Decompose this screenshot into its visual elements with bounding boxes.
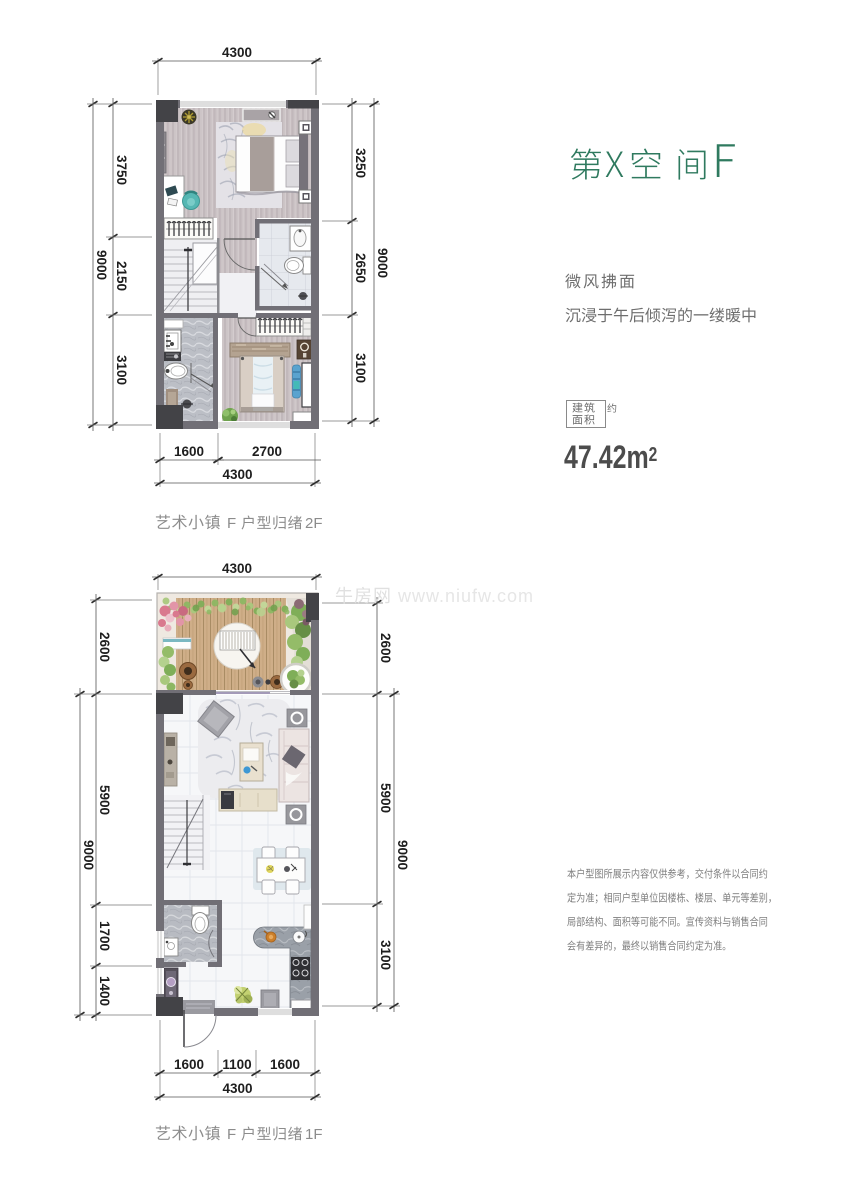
svg-text:2650: 2650 (353, 253, 368, 283)
svg-text:4300: 4300 (222, 467, 252, 482)
svg-text:2600: 2600 (378, 633, 393, 663)
svg-text:1600: 1600 (270, 1057, 300, 1072)
svg-text:1700: 1700 (97, 921, 112, 951)
svg-text:4300: 4300 (222, 561, 252, 576)
svg-text:9000: 9000 (81, 840, 96, 870)
svg-text:9000: 9000 (395, 840, 410, 870)
svg-text:1600: 1600 (174, 1057, 204, 1072)
svg-text:9000: 9000 (94, 250, 109, 280)
svg-text:1600: 1600 (174, 444, 204, 459)
svg-text:3250: 3250 (353, 148, 368, 178)
svg-text:3100: 3100 (353, 353, 368, 383)
svg-text:4300: 4300 (222, 45, 252, 60)
svg-text:1400: 1400 (97, 976, 112, 1006)
svg-text:3100: 3100 (378, 940, 393, 970)
svg-text:5900: 5900 (378, 783, 393, 813)
svg-text:2150: 2150 (114, 261, 129, 291)
svg-text:2600: 2600 (97, 632, 112, 662)
svg-text:3100: 3100 (114, 355, 129, 385)
svg-text:3750: 3750 (114, 155, 129, 185)
svg-text:2700: 2700 (252, 444, 282, 459)
svg-text:5900: 5900 (97, 785, 112, 815)
svg-text:9000: 9000 (375, 248, 390, 278)
svg-text:1100: 1100 (222, 1057, 251, 1072)
svg-text:4300: 4300 (222, 1081, 252, 1096)
